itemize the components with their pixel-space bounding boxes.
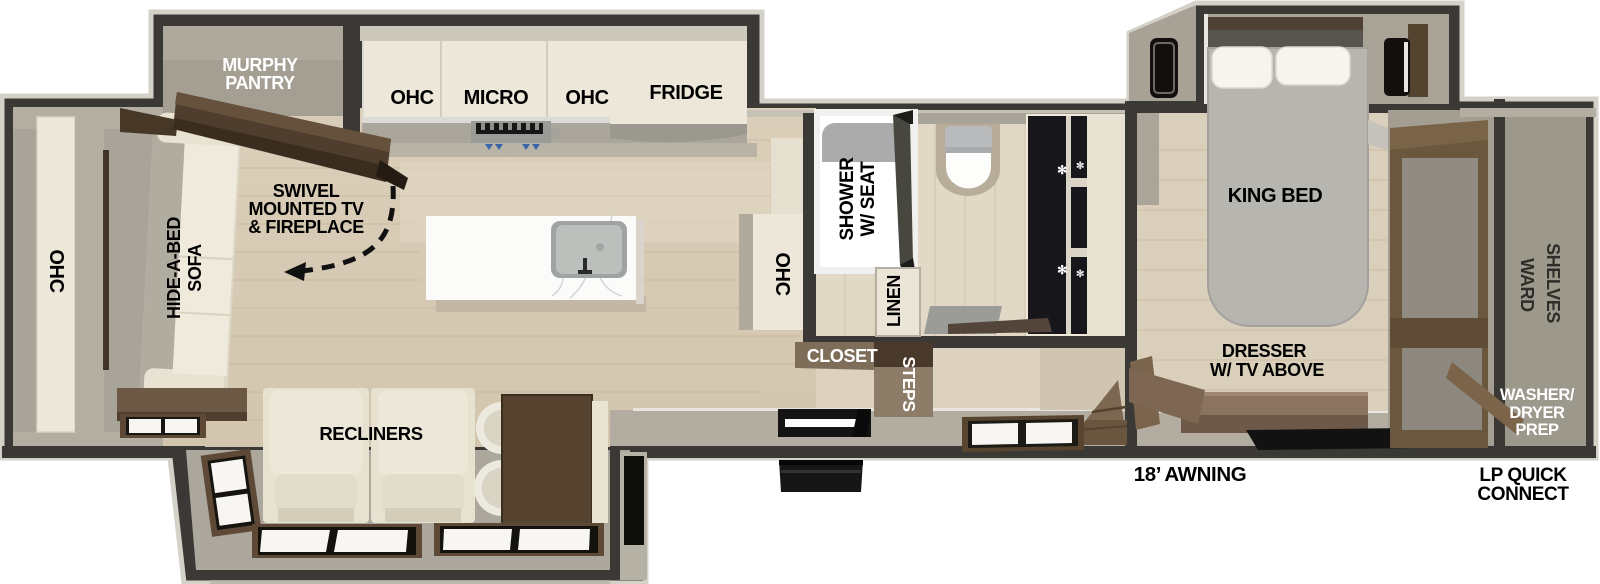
svg-text:DRYER: DRYER [1509, 404, 1565, 422]
svg-text:18’ AWNING: 18’ AWNING [1134, 463, 1247, 486]
svg-text:OHC: OHC [565, 87, 608, 109]
svg-text:OHC: OHC [45, 249, 67, 292]
svg-text:LP QUICK: LP QUICK [1479, 465, 1567, 486]
svg-text:WARD: WARD [1517, 258, 1537, 312]
svg-text:SOFA: SOFA [185, 244, 205, 292]
svg-text:OHC: OHC [771, 252, 793, 295]
svg-text:STEPS: STEPS [899, 356, 919, 411]
svg-text:✻: ✻ [1076, 161, 1084, 172]
svg-text:SHOWER: SHOWER [837, 157, 858, 241]
svg-text:MOUNTED TV: MOUNTED TV [249, 199, 364, 219]
svg-text:SHELVES: SHELVES [1543, 243, 1563, 323]
svg-text:SWIVEL: SWIVEL [273, 181, 340, 201]
svg-text:KING BED: KING BED [1228, 185, 1323, 207]
svg-text:HIDE-A-BED: HIDE-A-BED [164, 217, 184, 319]
svg-text:& FIREPLACE: & FIREPLACE [248, 217, 364, 237]
svg-text:CLOSET: CLOSET [807, 346, 878, 366]
svg-text:CONNECT: CONNECT [1477, 484, 1569, 505]
svg-text:WASHER/: WASHER/ [1500, 386, 1575, 404]
svg-text:✻: ✻ [1057, 163, 1067, 177]
svg-text:OHC: OHC [390, 87, 433, 109]
svg-text:✻: ✻ [1057, 263, 1067, 277]
svg-text:RECLINERS: RECLINERS [319, 423, 422, 444]
svg-text:MICRO: MICRO [464, 87, 529, 109]
svg-text:W/ TV ABOVE: W/ TV ABOVE [1210, 360, 1324, 380]
svg-text:DRESSER: DRESSER [1222, 341, 1307, 361]
svg-text:LINEN: LINEN [884, 275, 904, 327]
svg-text:MURPHY: MURPHY [222, 55, 298, 75]
svg-text:✻: ✻ [1076, 269, 1084, 280]
svg-text:FRIDGE: FRIDGE [649, 82, 722, 104]
svg-text:PANTRY: PANTRY [225, 73, 295, 93]
svg-text:PREP: PREP [1515, 421, 1559, 439]
svg-text:W/ SEAT: W/ SEAT [858, 161, 879, 237]
